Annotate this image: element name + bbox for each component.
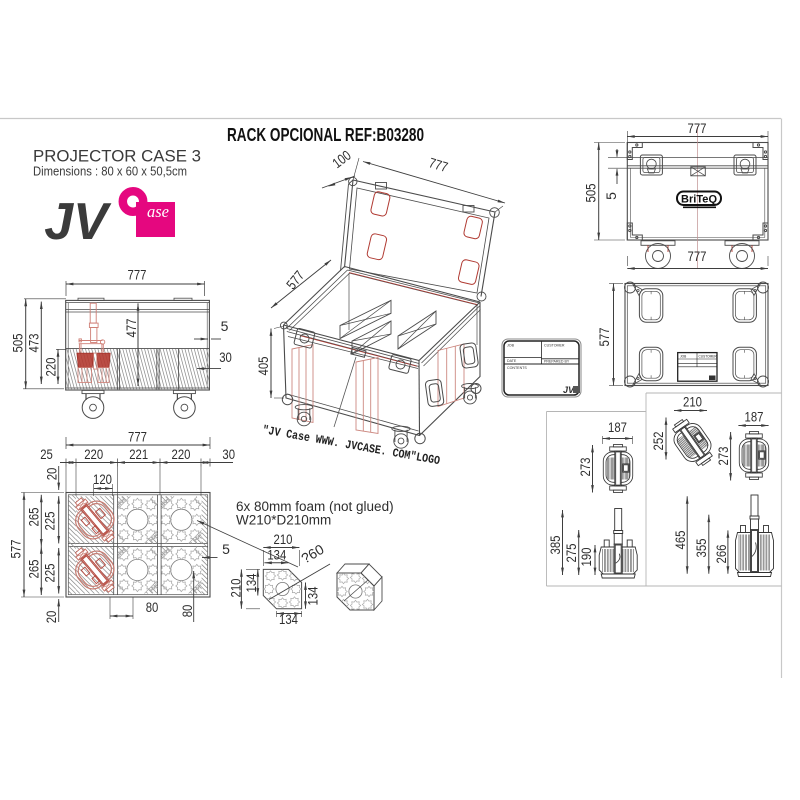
svg-text:473: 473 bbox=[26, 333, 42, 352]
svg-text:273: 273 bbox=[715, 446, 731, 465]
svg-text:220: 220 bbox=[84, 446, 103, 462]
svg-text:252: 252 bbox=[650, 431, 666, 450]
svg-text:265: 265 bbox=[26, 507, 42, 526]
svg-text:25: 25 bbox=[40, 446, 53, 462]
svg-text:JOB: JOB bbox=[680, 354, 686, 358]
svg-text:20: 20 bbox=[44, 468, 60, 481]
svg-text:120: 120 bbox=[93, 471, 112, 487]
svg-text:JOB: JOB bbox=[507, 344, 515, 348]
svg-text:ase: ase bbox=[147, 202, 169, 221]
svg-text:465: 465 bbox=[672, 530, 688, 549]
svg-text:220: 220 bbox=[172, 446, 191, 462]
svg-text:5: 5 bbox=[221, 318, 229, 334]
svg-text:221: 221 bbox=[129, 446, 148, 462]
svg-text:355: 355 bbox=[693, 538, 709, 557]
svg-text:187: 187 bbox=[745, 409, 764, 425]
svg-text:777: 777 bbox=[688, 120, 707, 136]
svg-text:210: 210 bbox=[683, 394, 702, 410]
svg-text:225: 225 bbox=[42, 563, 58, 582]
svg-text:80: 80 bbox=[179, 605, 195, 618]
svg-text:CONTENTS: CONTENTS bbox=[507, 366, 527, 370]
svg-text:266: 266 bbox=[713, 544, 729, 563]
svg-text:CUSTOMER: CUSTOMER bbox=[544, 344, 565, 348]
svg-text:5: 5 bbox=[603, 192, 619, 200]
svg-text:275: 275 bbox=[563, 543, 579, 562]
svg-text:505: 505 bbox=[10, 333, 26, 352]
svg-text:187: 187 bbox=[608, 419, 627, 435]
svg-text:W210*D210mm: W210*D210mm bbox=[236, 513, 331, 528]
svg-text:385: 385 bbox=[547, 535, 563, 554]
svg-text:190: 190 bbox=[578, 547, 594, 566]
svg-text:477: 477 bbox=[123, 318, 139, 337]
svg-text:577: 577 bbox=[8, 539, 24, 558]
svg-text:30: 30 bbox=[222, 446, 235, 462]
svg-text:577: 577 bbox=[596, 327, 612, 346]
svg-text:273: 273 bbox=[577, 457, 593, 476]
svg-text:134: 134 bbox=[305, 586, 321, 605]
svg-text:405: 405 bbox=[255, 356, 271, 375]
svg-text:BriTeQ: BriTeQ bbox=[681, 194, 717, 206]
svg-text:20: 20 bbox=[43, 611, 59, 624]
svg-text:220: 220 bbox=[43, 357, 59, 376]
svg-text:JV: JV bbox=[44, 193, 112, 251]
svg-text:505: 505 bbox=[583, 183, 599, 202]
svg-text:CUSTOMER: CUSTOMER bbox=[699, 354, 718, 358]
svg-text:5: 5 bbox=[222, 541, 230, 557]
svg-text:PREPARED BY: PREPARED BY bbox=[544, 360, 570, 364]
svg-text:777: 777 bbox=[128, 267, 147, 283]
svg-text:80: 80 bbox=[146, 599, 159, 615]
svg-text:30: 30 bbox=[219, 349, 232, 365]
svg-text:777: 777 bbox=[128, 429, 147, 445]
svg-text:225: 225 bbox=[42, 511, 58, 530]
svg-text:134: 134 bbox=[267, 547, 286, 563]
svg-text:777: 777 bbox=[688, 248, 707, 264]
svg-text:RACK OPCIONAL REF:B03280: RACK OPCIONAL REF:B03280 bbox=[227, 125, 424, 145]
svg-text:DATE: DATE bbox=[507, 359, 517, 363]
svg-text:Dimensions : 80 x 60 x 50,5cm: Dimensions : 80 x 60 x 50,5cm bbox=[33, 164, 187, 179]
svg-text:265: 265 bbox=[26, 559, 42, 578]
svg-text:210: 210 bbox=[274, 531, 293, 547]
